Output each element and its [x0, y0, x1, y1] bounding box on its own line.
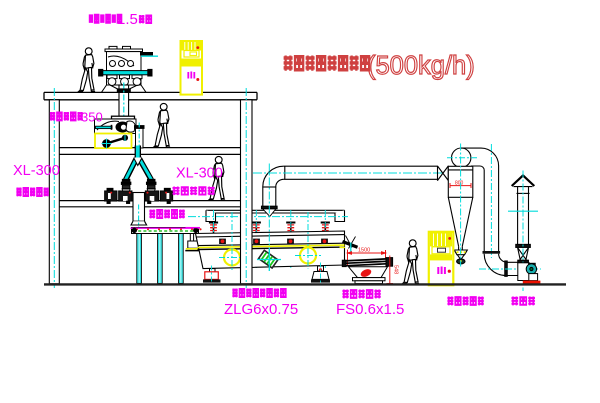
svg-text:XL-300: XL-300: [13, 163, 60, 179]
svg-text:548: 548: [393, 265, 399, 274]
svg-text:(500kg/h): (500kg/h): [367, 52, 475, 80]
svg-text:350: 350: [81, 110, 103, 125]
svg-text:XL-300: XL-300: [176, 166, 223, 182]
svg-text:800: 800: [455, 180, 464, 186]
svg-text:1.5: 1.5: [117, 11, 138, 28]
svg-text:ZLG6x0.75: ZLG6x0.75: [224, 301, 298, 318]
svg-text:1500: 1500: [358, 248, 370, 254]
svg-text:FS0.6x1.5: FS0.6x1.5: [336, 301, 404, 318]
